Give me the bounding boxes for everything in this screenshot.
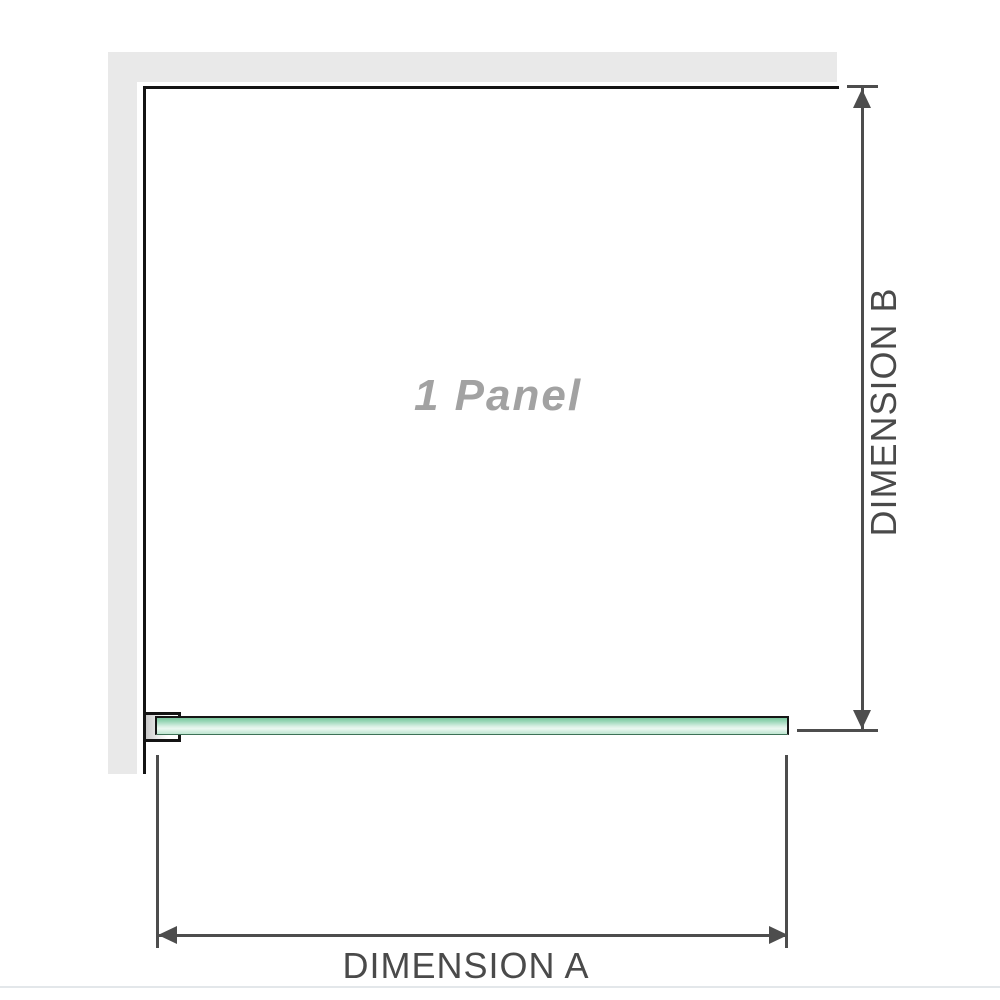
dimension-a-left-extension-line xyxy=(156,755,159,948)
dimension-a-right-extension-line xyxy=(785,755,788,948)
wall-top-band xyxy=(108,52,837,82)
bottom-divider xyxy=(0,986,1000,988)
dimension-b-bottom-tick xyxy=(797,729,878,732)
wall-edge-left-line xyxy=(143,86,146,774)
panel-count-label: 1 Panel xyxy=(414,371,582,421)
glass-panel xyxy=(155,716,789,735)
dimension-a-label: DIMENSION A xyxy=(342,945,589,987)
wall-edge-top-line xyxy=(143,86,839,89)
dimension-a-line xyxy=(158,934,788,937)
shower-panel-diagram: 1 Panel DIMENSION B DIMENSION A xyxy=(0,0,1000,1000)
dimension-b-arrow-down-icon xyxy=(853,710,871,729)
dimension-a-arrow-left-icon xyxy=(158,926,177,944)
dimension-b-arrow-up-icon xyxy=(853,89,871,108)
dimension-a-arrow-right-icon xyxy=(769,926,788,944)
wall-left-band xyxy=(108,52,137,774)
dimension-b-label: DIMENSION B xyxy=(863,287,905,536)
